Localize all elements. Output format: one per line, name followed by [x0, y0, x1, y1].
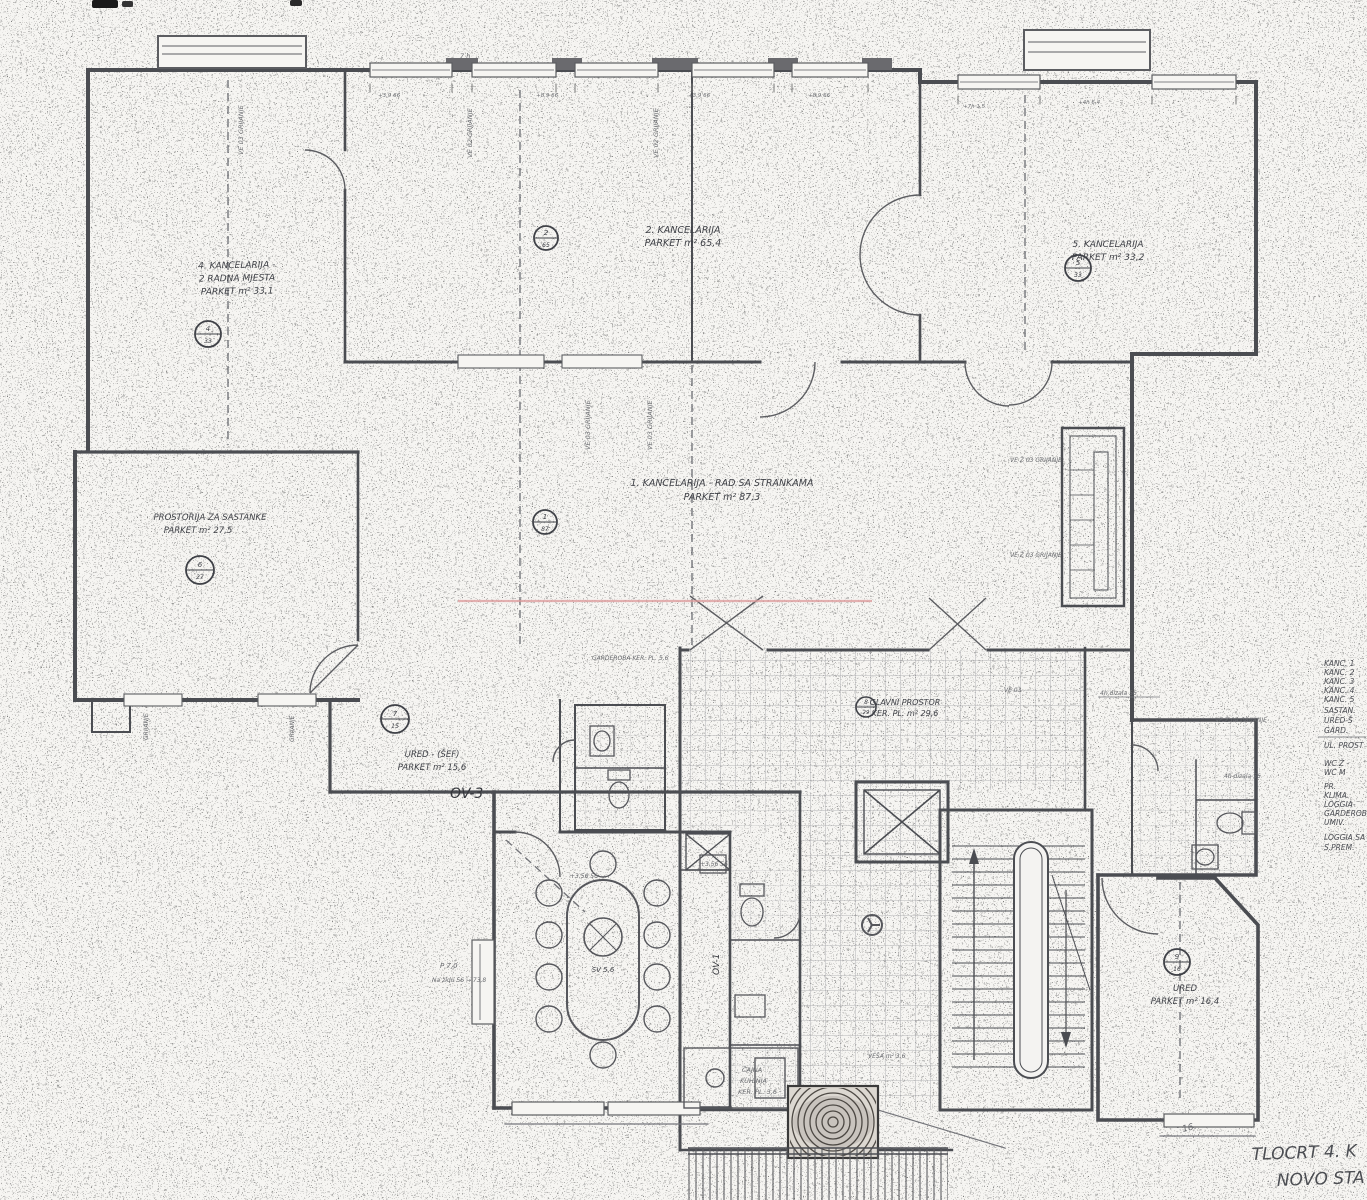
svg-text:PARKET m² 16,4: PARKET m² 16,4: [1151, 997, 1220, 1007]
annotation: 4h dizala 56: [1100, 690, 1137, 697]
svg-text:KER. PL. m² 29,6: KER. PL. m² 29,6: [872, 709, 939, 718]
legend-item: S.PREM.: [1324, 843, 1354, 852]
stair-railing-oval: [1014, 842, 1048, 1078]
legend-item: WC Ž -: [1324, 759, 1350, 768]
annotation: ČAJNA: [742, 1065, 762, 1074]
window-strip-top: [370, 63, 868, 77]
scanned-floor-plan-page: 4. KANCELARIJA - 2 RADNA MJESTA PARKET m…: [0, 0, 1367, 1200]
legend-item: GARD.: [1324, 726, 1348, 735]
svg-text:PARKET m² 87,3: PARKET m² 87,3: [684, 492, 761, 503]
svg-text:5. KANCELARIJA: 5. KANCELARIJA: [1072, 240, 1143, 250]
annotation: GRIJANJE: [143, 713, 150, 740]
annotation: GARDEROBA KER. PL. 5,6: [592, 655, 669, 662]
svg-text:PARKET m² 65,4: PARKET m² 65,4: [645, 238, 722, 249]
annotation: VE Ž 03 GRIJANJE: [1010, 551, 1062, 559]
svg-text:PARKET m² 33,1: PARKET m² 33,1: [201, 286, 274, 297]
legend-item: LOGGIA SA: [1324, 833, 1365, 842]
annotation: VE 02 GRIJANJE: [466, 107, 474, 158]
annotation: +3,56 56: [570, 873, 598, 880]
legend-item: KANC. 2: [1324, 668, 1355, 677]
annotation: VEŠA m² 3,6: [868, 1053, 906, 1060]
svg-text:15: 15: [391, 723, 399, 730]
annotation: VE Ž 03 GRIJANJE: [1010, 456, 1062, 464]
svg-text:PARKET m² 33,2: PARKET m² 33,2: [1072, 253, 1145, 263]
annotation-ov3: OV-3: [450, 786, 483, 802]
annotation: VE 03 GRIJANJE: [237, 104, 245, 155]
annotation: VE Ž 04 GRIJANJE: [1215, 716, 1267, 724]
annotation: +8,9 66: [536, 93, 559, 99]
svg-text:2 RADNA MJESTA: 2 RADNA MJESTA: [199, 273, 275, 284]
annotation: +7h 1,5: [963, 104, 986, 110]
legend-item: GARDEROB: [1324, 809, 1367, 818]
annotation: +3,9 66: [378, 93, 401, 99]
label-kancelarija-4: 4. KANCELARIJA - 2 RADNA MJESTA PARKET m…: [198, 260, 276, 297]
legend-item: KANC. 3: [1324, 677, 1355, 686]
badge-ured-sef: 7 15: [381, 705, 409, 733]
annotation: VE 03: [1004, 687, 1022, 694]
svg-text:87: 87: [541, 526, 549, 533]
badge-meetingroom: 6 27: [186, 556, 214, 584]
badge-room2: 2 65: [534, 226, 558, 250]
table-label: SV 5,6: [592, 966, 615, 974]
entry-steps: [688, 1148, 948, 1200]
annotation: +3,9 66: [688, 93, 711, 99]
svg-text:29: 29: [863, 710, 870, 716]
annotation: GRIJANJE: [289, 715, 296, 742]
annotation: 4h dizala 56: [1224, 773, 1261, 780]
floor-plan-canvas: 4. KANCELARIJA - 2 RADNA MJESTA PARKET m…: [0, 0, 1367, 1200]
badge-hall: 8 29: [856, 697, 876, 717]
svg-text:1: 1: [543, 513, 547, 521]
bay-window-topright: [1024, 30, 1150, 70]
window-southeast-room: [1164, 1114, 1254, 1127]
svg-text:27: 27: [196, 574, 204, 581]
annotation: VE 03 GRIJANJE: [646, 399, 654, 450]
svg-text:PROSTORIJA ZA SASTANKE: PROSTORIJA ZA SASTANKE: [154, 513, 268, 523]
badge-room5: 5 33: [1065, 255, 1091, 281]
annotation: VE 02 GRIJANJE: [652, 107, 660, 158]
svg-text:GLAVNI PROSTOR: GLAVNI PROSTOR: [870, 698, 941, 707]
annotation: KUHINJA: [740, 1077, 767, 1085]
svg-text:16: 16: [1173, 966, 1181, 973]
annotation: +8,9 66: [808, 93, 831, 99]
drawing-subtitle: NOVO STA: [1276, 1168, 1364, 1191]
annotation: +4h 6,4: [1078, 100, 1101, 106]
svg-text:8: 8: [864, 699, 868, 706]
annotation: Na zidu 56 → 73,8: [432, 977, 486, 984]
annotation: VE 03 GRIJANJE: [584, 399, 592, 450]
legend-item: KANC. 4: [1324, 686, 1355, 695]
annotation: 7 h: [460, 52, 470, 60]
svg-text:6: 6: [198, 561, 203, 569]
annotation: KER. PL. 3,6: [738, 1088, 777, 1096]
bay-window-topleft: [158, 36, 306, 68]
legend-item: LOGGIA-: [1324, 800, 1356, 809]
legend-item: KANC. 1: [1324, 659, 1354, 668]
legend-item: UMIV.: [1324, 818, 1345, 827]
legend-item: SASTAN.: [1324, 706, 1356, 715]
legend-item: KLIMA.: [1324, 791, 1349, 800]
annotation: P 7,0: [440, 962, 458, 970]
legend-item: PR.: [1324, 782, 1336, 791]
svg-text:5: 5: [1076, 259, 1081, 267]
svg-text:33: 33: [1074, 272, 1082, 279]
svg-text:PARKET m² 15,6: PARKET m² 15,6: [398, 763, 467, 773]
svg-text:1. KANCELARIJA - RAD SA STRANK: 1. KANCELARIJA - RAD SA STRANKAMA: [631, 478, 814, 489]
annotation: +3,56 56: [700, 861, 728, 868]
svg-text:33: 33: [204, 338, 212, 345]
svg-text:65: 65: [542, 242, 550, 249]
legend-item: WC M: [1324, 768, 1346, 777]
svg-text:7: 7: [393, 710, 398, 718]
annotation-ov1: OV-1: [712, 954, 722, 975]
svg-text:2. KANCELARIJA: 2. KANCELARIJA: [645, 225, 720, 236]
svg-text:2: 2: [544, 229, 549, 237]
badge-room4: 4 33: [195, 321, 221, 347]
legend-item: URED-Š: [1324, 716, 1353, 725]
drawing-title: TLOCRT 4. K: [1251, 1141, 1358, 1165]
badge-room1: 1 87: [533, 510, 557, 534]
svg-text:URED - (ŠEF): URED - (ŠEF): [405, 748, 460, 760]
svg-text:9: 9: [1175, 953, 1180, 961]
svg-text:PARKET m² 27,5: PARKET m² 27,5: [164, 526, 233, 536]
svg-text:4: 4: [206, 325, 210, 333]
legend-item: UL. PROST: [1324, 741, 1365, 750]
svg-text:URED: URED: [1173, 984, 1197, 994]
badge-ured-dolje: 9 16: [1164, 949, 1190, 975]
legend-item: KANC. 5: [1324, 695, 1355, 704]
svg-text:4. KANCELARIJA -: 4. KANCELARIJA -: [198, 260, 275, 271]
